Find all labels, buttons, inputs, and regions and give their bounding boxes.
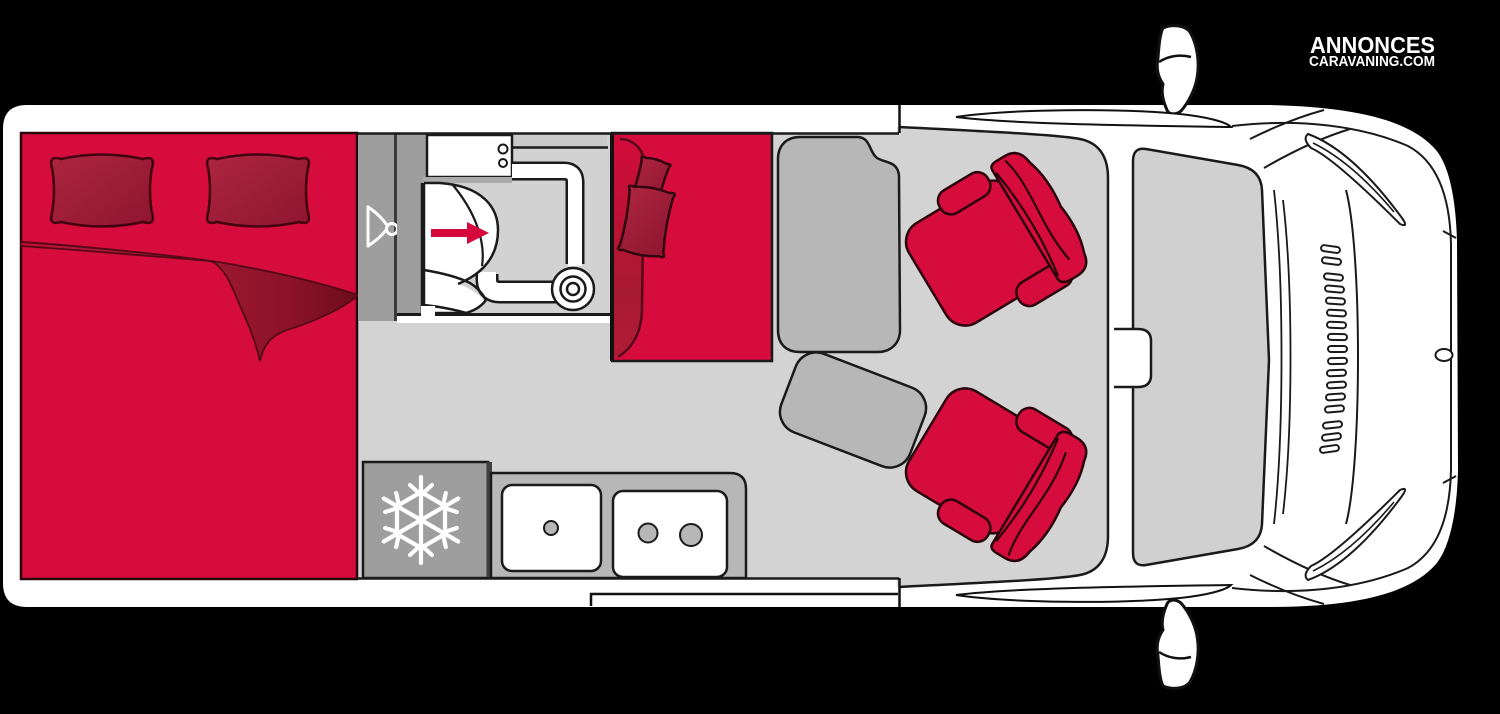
svg-text:CARAVANING.COM: CARAVANING.COM [1309, 54, 1435, 70]
